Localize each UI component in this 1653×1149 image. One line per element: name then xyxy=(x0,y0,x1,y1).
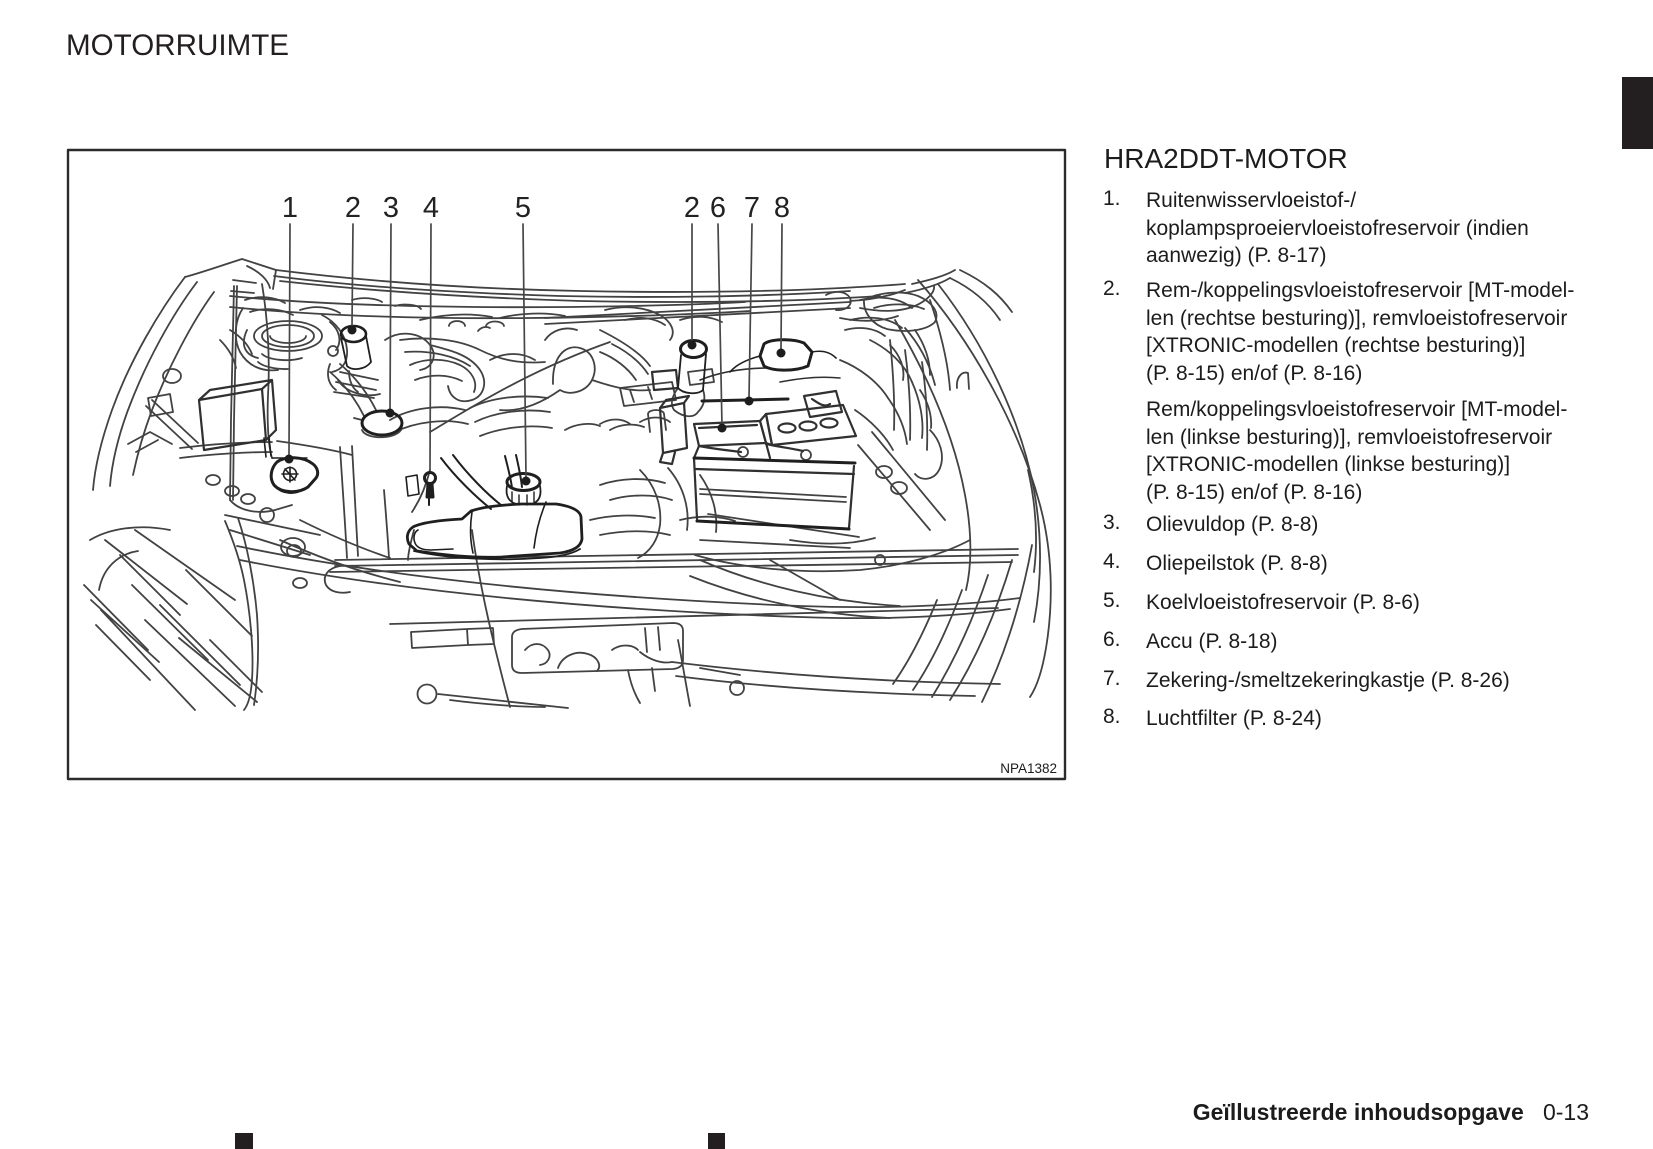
svg-text:5: 5 xyxy=(515,192,531,224)
svg-text:3: 3 xyxy=(383,192,399,224)
svg-text:8: 8 xyxy=(774,192,790,224)
svg-text:2: 2 xyxy=(345,192,361,224)
svg-text:NPA1382: NPA1382 xyxy=(1000,761,1057,776)
svg-text:1: 1 xyxy=(282,192,298,224)
svg-text:6: 6 xyxy=(710,192,726,224)
svg-text:2: 2 xyxy=(684,192,700,224)
svg-text:4: 4 xyxy=(423,192,439,224)
svg-text:7: 7 xyxy=(744,192,760,224)
